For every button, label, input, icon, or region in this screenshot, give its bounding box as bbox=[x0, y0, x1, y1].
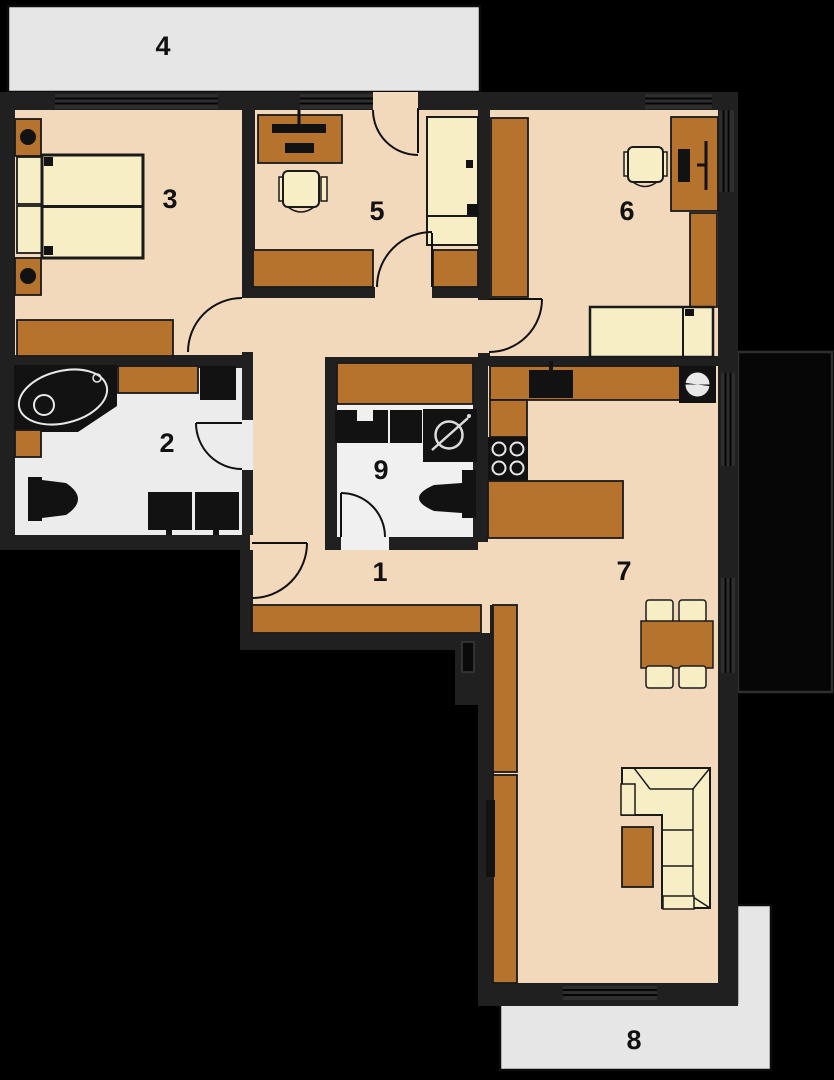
room-label-5: 5 bbox=[369, 196, 384, 226]
hall-wardrobe-icon bbox=[252, 605, 481, 633]
coffee-table-icon bbox=[622, 827, 653, 887]
dining-chair-icon bbox=[679, 600, 706, 622]
side-balcony-outline bbox=[738, 352, 832, 692]
window bbox=[563, 986, 657, 1000]
room-label-4: 4 bbox=[155, 31, 170, 61]
wc-counter-sink-icon bbox=[335, 410, 422, 443]
cooktop-icon bbox=[488, 437, 528, 481]
double-bed-icon bbox=[42, 155, 143, 258]
wardrobe-icon bbox=[17, 320, 173, 356]
wardrobe-icon bbox=[433, 250, 478, 287]
room-label-1: 1 bbox=[372, 557, 387, 587]
window bbox=[645, 94, 712, 109]
opening-terrace-door bbox=[373, 92, 418, 110]
window bbox=[55, 94, 218, 109]
terrace-top bbox=[8, 6, 480, 92]
desk-icon bbox=[258, 110, 342, 163]
dining-chair-icon bbox=[646, 666, 673, 688]
room-label-9: 9 bbox=[373, 455, 388, 485]
single-bed-icon bbox=[590, 307, 713, 357]
window bbox=[721, 578, 735, 673]
fridge-icon bbox=[679, 366, 716, 403]
small-cabinet-icon bbox=[15, 430, 41, 457]
dining-table-icon bbox=[641, 621, 713, 668]
wall-unit-icon bbox=[493, 775, 517, 983]
room-label-3: 3 bbox=[162, 184, 177, 214]
pillow-icon bbox=[17, 157, 43, 204]
dining-chair-icon bbox=[646, 600, 673, 622]
window bbox=[300, 94, 373, 109]
room-label-6: 6 bbox=[619, 196, 634, 226]
wall-unit-icon bbox=[493, 605, 517, 772]
pillow-icon bbox=[17, 206, 43, 253]
entry-wardrobe-icon bbox=[427, 117, 478, 245]
wc-cabinet-icon bbox=[337, 363, 473, 404]
desk-icon bbox=[671, 117, 718, 211]
floor-plan-canvas: 1 2 3 4 5 6 7 8 9 bbox=[0, 0, 834, 1080]
dining-chair-icon bbox=[679, 666, 706, 688]
washing-machine-icon bbox=[423, 409, 477, 462]
wardrobe-icon bbox=[491, 118, 528, 297]
lamp-icon bbox=[20, 268, 36, 284]
kitchen-island-icon bbox=[488, 481, 623, 538]
office-chair-icon bbox=[624, 147, 667, 187]
room-label-8: 8 bbox=[626, 1025, 641, 1055]
window bbox=[719, 110, 734, 192]
opening-bedroom3-door bbox=[242, 298, 255, 352]
utility-shaft bbox=[455, 633, 479, 705]
kitchen-counter-icon bbox=[490, 400, 527, 437]
opening-bedroom6-door bbox=[478, 300, 490, 353]
room-label-7: 7 bbox=[616, 556, 631, 586]
floor-plan-drawing: 1 2 3 4 5 6 7 8 9 bbox=[0, 0, 834, 1080]
shower-unit-icon bbox=[200, 366, 236, 400]
room-label-2: 2 bbox=[159, 428, 174, 458]
opening-wc-door bbox=[341, 537, 389, 550]
tv-icon bbox=[486, 800, 495, 877]
opening-study5-door bbox=[375, 287, 432, 300]
kitchen-counter-icon bbox=[490, 366, 680, 400]
window bbox=[721, 373, 735, 466]
wardrobe-icon bbox=[253, 250, 373, 287]
lamp-icon bbox=[20, 129, 36, 145]
opening-bathroom-door bbox=[242, 420, 253, 470]
bathroom-cabinet-icon bbox=[118, 366, 198, 393]
cabinet-icon bbox=[690, 213, 717, 307]
